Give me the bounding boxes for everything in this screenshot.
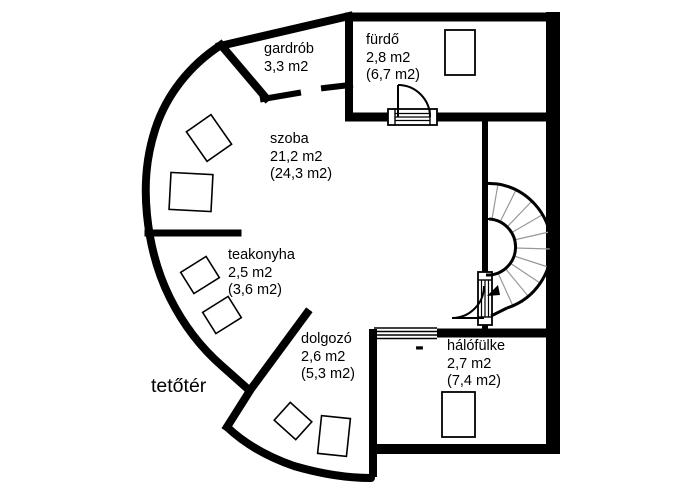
skylight-icon (181, 256, 220, 293)
room-name: teakonyha (228, 247, 295, 265)
gardrob-south-wall-left (263, 93, 298, 99)
room-name: dolgozó (301, 331, 355, 349)
room-area-net: 2,7 m2 (447, 356, 505, 374)
room-name: gardrób (264, 41, 314, 59)
skylight-icon (274, 402, 312, 439)
room-area-gross: (6,7 m2) (366, 67, 420, 85)
gardrob-west-wall (221, 45, 266, 98)
room-label-teakonyha: teakonyha 2,5 m2 (3,6 m2) (228, 247, 295, 300)
furdo-door-icon (388, 85, 437, 125)
outer-curved-wall-upper (146, 45, 249, 390)
room-label-furdo: fürdő 2,8 m2 (6,7 m2) (366, 32, 420, 85)
bed-icon (442, 392, 475, 437)
dolgozo-diagonal-wall (227, 313, 307, 427)
skylight-icon (169, 172, 213, 211)
room-name: szoba (270, 131, 332, 149)
shower-tray-icon (445, 30, 475, 75)
room-area-gross: (3,6 m2) (228, 282, 295, 300)
floor-label: tetőtér (151, 375, 206, 397)
room-area-net: 3,3 m2 (264, 59, 314, 77)
room-area-net: 2,5 m2 (228, 265, 295, 283)
floor-plan-drawing (0, 0, 694, 491)
room-label-gardrob: gardrób 3,3 m2 (264, 41, 314, 76)
skylight-icon (203, 296, 242, 333)
room-name: hálófülke (447, 338, 505, 356)
room-area-gross: (24,3 m2) (270, 166, 332, 184)
room-area-net: 2,8 m2 (366, 50, 420, 68)
skylight-icon (186, 115, 231, 162)
room-area-gross: (7,4 m2) (447, 373, 505, 391)
floor-plan-page: { "plan": { "floor_label": "tetőtér", "w… (0, 0, 694, 491)
room-area-net: 21,2 m2 (270, 149, 332, 167)
stair-treads (492, 184, 551, 306)
room-label-szoba: szoba 21,2 m2 (24,3 m2) (270, 131, 332, 184)
window-dash-symbol: - (415, 333, 424, 360)
skylight-icon (318, 416, 351, 457)
room-name: fürdő (366, 32, 420, 50)
outer-walls (146, 12, 559, 478)
room-area-gross: (5,3 m2) (301, 366, 355, 384)
stair-hall-door-icon (452, 272, 492, 325)
room-label-halofulke: hálófülke 2,7 m2 (7,4 m2) (447, 338, 505, 391)
room-label-dolgozo: dolgozó 2,6 m2 (5,3 m2) (301, 331, 355, 384)
room-area-net: 2,6 m2 (301, 349, 355, 367)
halofulke-window-icon (374, 328, 437, 339)
